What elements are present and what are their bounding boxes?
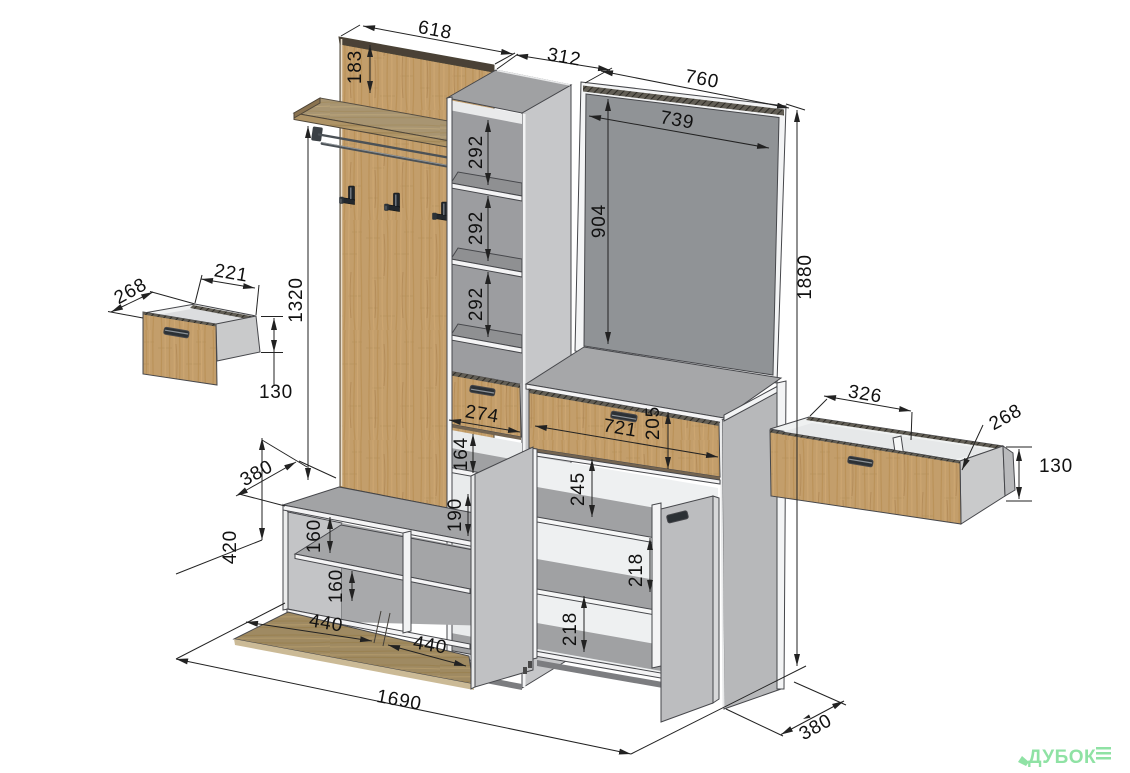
svg-text:190: 190 [445, 498, 466, 532]
svg-text:205: 205 [643, 406, 664, 440]
svg-text:130: 130 [259, 382, 293, 403]
svg-text:245: 245 [568, 472, 589, 506]
svg-text:904: 904 [589, 204, 610, 238]
svg-text:ДУБОК: ДУБОК [1028, 747, 1096, 768]
svg-text:218: 218 [626, 553, 647, 587]
svg-text:292: 292 [466, 287, 487, 321]
svg-text:164: 164 [451, 437, 472, 471]
svg-text:292: 292 [466, 135, 487, 169]
svg-text:130: 130 [1039, 456, 1073, 477]
svg-text:160: 160 [304, 519, 325, 553]
svg-text:420: 420 [220, 530, 241, 564]
svg-text:1320: 1320 [286, 277, 307, 322]
svg-text:1880: 1880 [795, 254, 816, 299]
svg-text:183: 183 [345, 50, 366, 84]
svg-text:160: 160 [326, 569, 347, 603]
svg-text:218: 218 [560, 612, 581, 646]
svg-text:292: 292 [466, 211, 487, 245]
